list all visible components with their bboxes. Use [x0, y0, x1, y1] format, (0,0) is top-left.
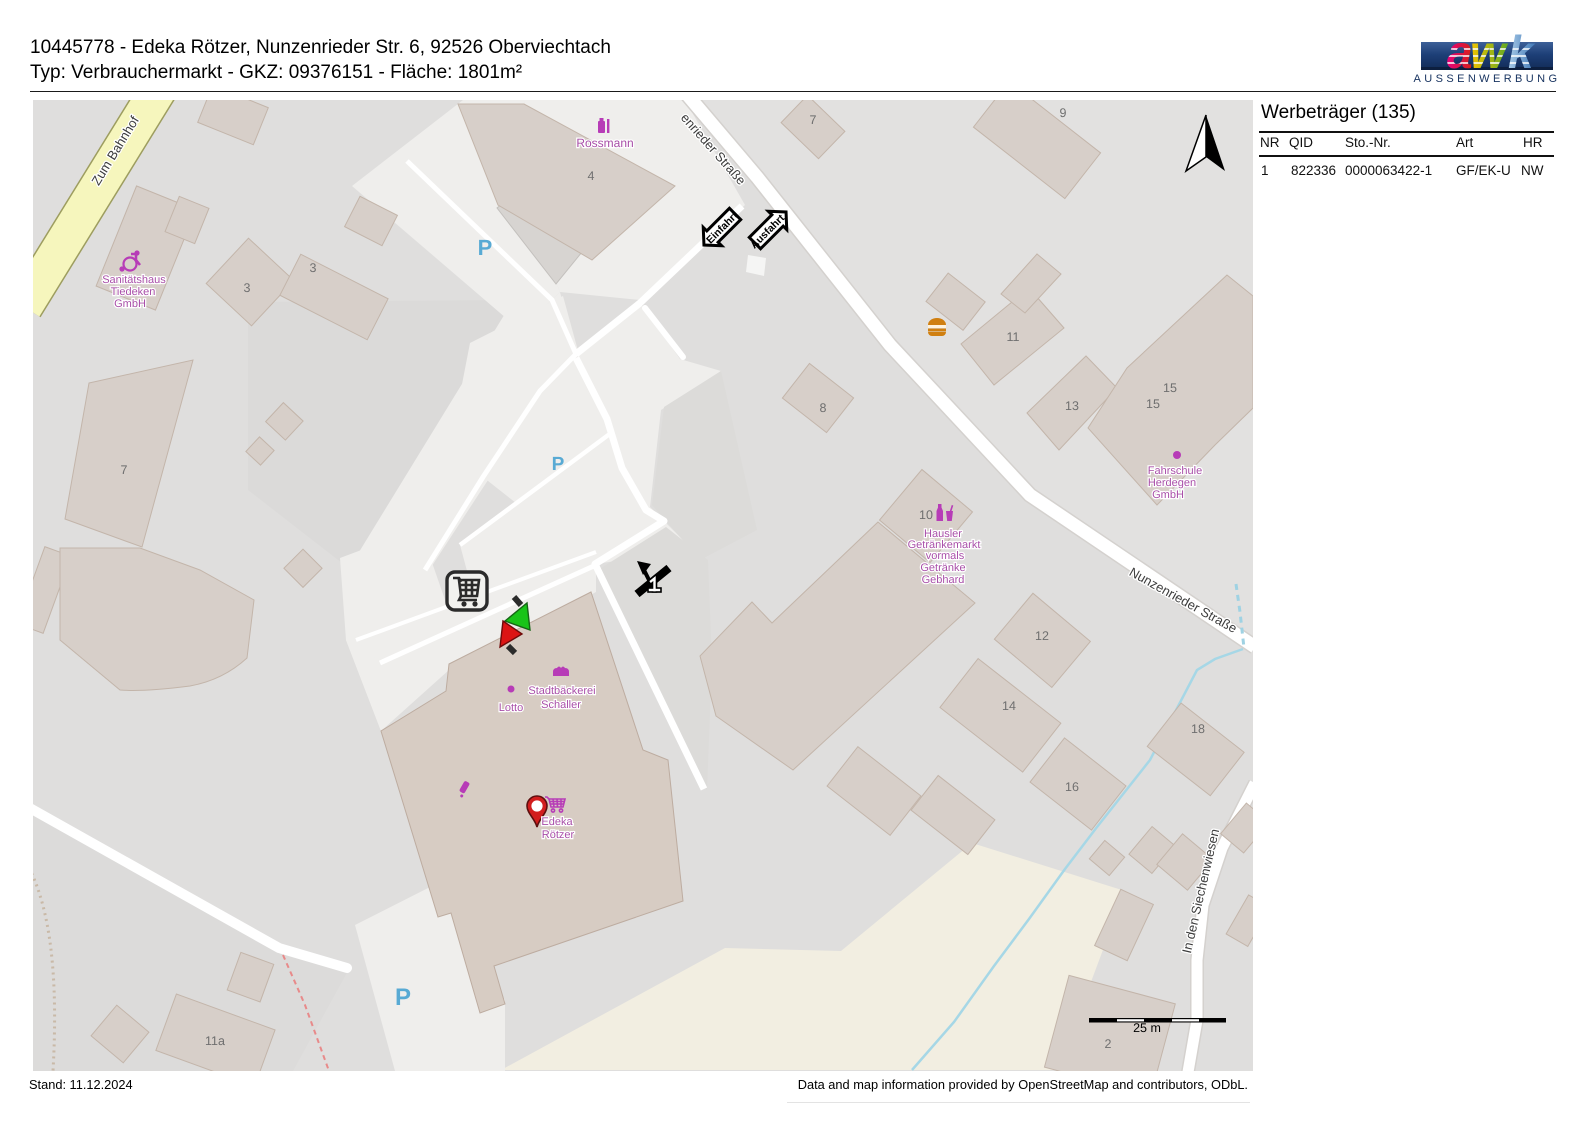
svg-text:13: 13 — [1065, 399, 1079, 413]
svg-text:Stadtbäckerei: Stadtbäckerei — [528, 685, 595, 697]
svg-text:18: 18 — [1191, 722, 1205, 736]
svg-text:15: 15 — [1146, 397, 1160, 411]
svg-text:11: 11 — [1007, 330, 1020, 344]
svg-text:Herdegen: Herdegen — [1148, 477, 1196, 489]
svg-text:9: 9 — [1060, 106, 1067, 120]
svg-text:3: 3 — [310, 261, 317, 275]
svg-text:Gebhard: Gebhard — [922, 574, 965, 586]
svg-text:11a: 11a — [205, 1034, 225, 1048]
svg-text:Sanitätshaus: Sanitätshaus — [102, 274, 166, 286]
svg-text:GmbH: GmbH — [1152, 489, 1184, 501]
svg-text:Tiedeken: Tiedeken — [111, 286, 156, 298]
svg-text:Edeka: Edeka — [541, 816, 573, 828]
svg-text:Rötzer: Rötzer — [542, 829, 575, 841]
svg-text:16: 16 — [1065, 780, 1079, 794]
svg-text:Fahrschule: Fahrschule — [1148, 465, 1202, 477]
svg-text:w: w — [1470, 26, 1509, 78]
svg-text:7: 7 — [121, 463, 128, 477]
svg-text:Schaller: Schaller — [541, 699, 581, 711]
svg-text:7: 7 — [810, 113, 817, 127]
svg-text:10: 10 — [919, 508, 933, 522]
svg-text:4: 4 — [588, 169, 595, 183]
svg-text:GmbH: GmbH — [114, 298, 146, 310]
svg-text:Getränke: Getränke — [920, 562, 965, 574]
svg-text:12: 12 — [1035, 629, 1049, 643]
svg-text:Lotto: Lotto — [499, 702, 523, 714]
svg-text:14: 14 — [1002, 699, 1016, 713]
svg-text:15: 15 — [1163, 381, 1177, 395]
svg-text:AUSSENWERBUNG: AUSSENWERBUNG — [1414, 73, 1561, 85]
svg-text:Rossmann: Rossmann — [576, 136, 633, 150]
svg-text:P: P — [478, 235, 493, 260]
svg-text:vormals: vormals — [926, 550, 965, 562]
svg-text:a: a — [1447, 26, 1473, 78]
svg-text:3: 3 — [244, 281, 251, 295]
svg-text:2: 2 — [1105, 1037, 1112, 1051]
svg-text:8: 8 — [820, 401, 827, 415]
svg-text:P: P — [552, 454, 565, 475]
svg-text:P: P — [395, 984, 411, 1011]
svg-text:25 m: 25 m — [1133, 1021, 1161, 1035]
svg-text:k: k — [1508, 26, 1536, 78]
